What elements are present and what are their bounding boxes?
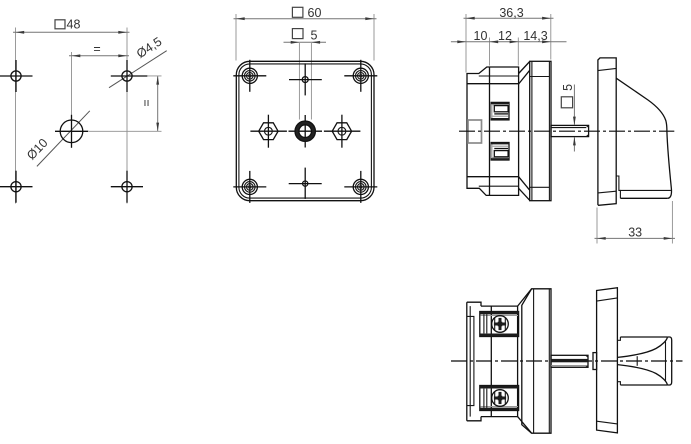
svg-text:14,3: 14,3	[523, 29, 547, 43]
svg-text:60: 60	[308, 6, 322, 20]
svg-text:33: 33	[628, 226, 642, 240]
svg-text:=: =	[93, 42, 100, 56]
svg-text:36,3: 36,3	[499, 6, 523, 20]
svg-text:=: =	[140, 99, 154, 106]
svg-text:48: 48	[67, 18, 81, 32]
svg-text:5: 5	[311, 28, 318, 42]
svg-text:12: 12	[498, 29, 512, 43]
svg-text:5: 5	[561, 84, 575, 91]
svg-text:10: 10	[474, 29, 488, 43]
